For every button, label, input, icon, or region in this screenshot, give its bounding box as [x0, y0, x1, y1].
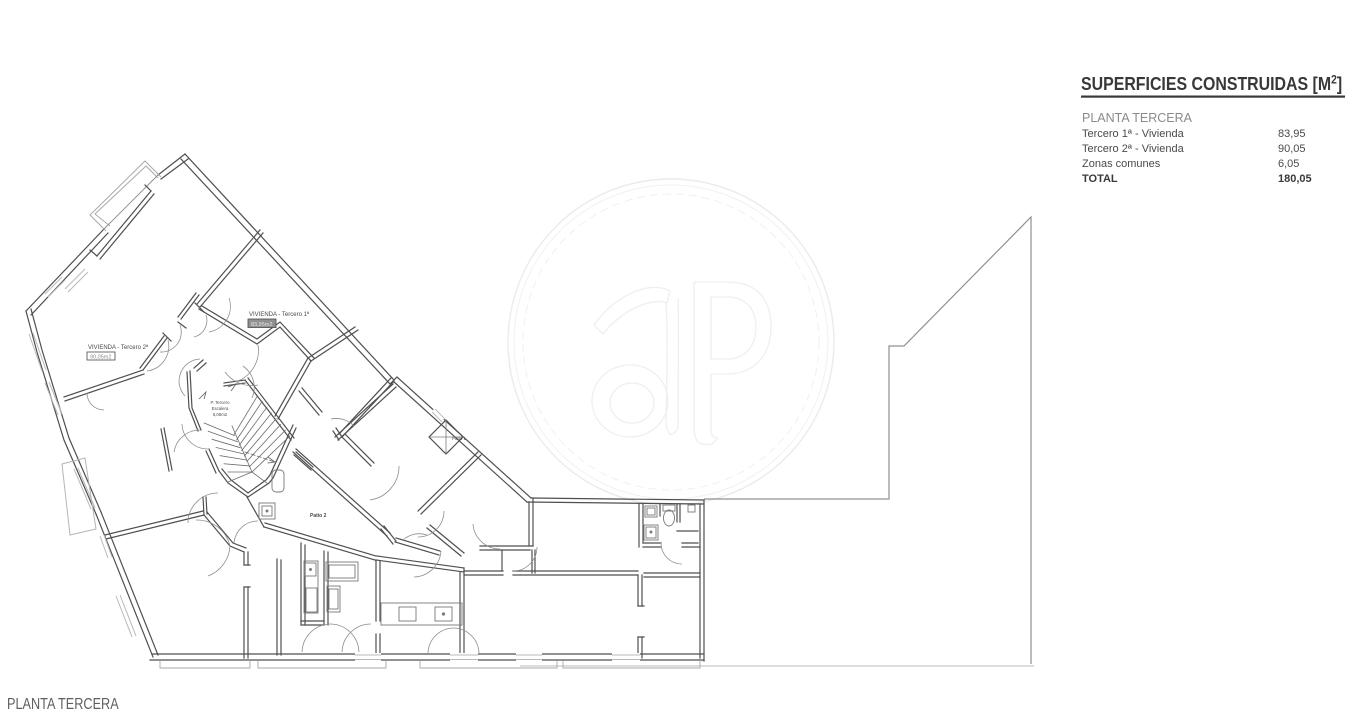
- svg-text:Zonas comunes: Zonas comunes: [1082, 158, 1161, 170]
- svg-text:VIVIENDA - Tercero 1ª: VIVIENDA - Tercero 1ª: [249, 311, 310, 318]
- svg-text:Escalera: Escalera: [212, 406, 229, 411]
- svg-text:90,05: 90,05: [1278, 143, 1306, 155]
- svg-text:83,95m2: 83,95m2: [251, 322, 272, 328]
- svg-text:6,05: 6,05: [1278, 158, 1299, 170]
- svg-text:VIVIENDA - Tercero 2ª: VIVIENDA - Tercero 2ª: [88, 344, 149, 351]
- svg-text:6,05m2: 6,05m2: [213, 412, 228, 417]
- svg-text:90,05m2: 90,05m2: [90, 355, 111, 361]
- svg-text:PLANTA TERCERA: PLANTA TERCERA: [7, 696, 119, 713]
- svg-text:P. Tercero: P. Tercero: [211, 400, 231, 405]
- svg-text:TOTAL: TOTAL: [1082, 173, 1118, 185]
- svg-text:83,95: 83,95: [1278, 128, 1306, 140]
- svg-text:Patio 1: Patio 1: [452, 436, 467, 441]
- svg-text:Patio 2: Patio 2: [310, 513, 327, 519]
- svg-text:SUPERFICIES CONSTRUIDAS [M2]: SUPERFICIES CONSTRUIDAS [M2]: [1081, 73, 1342, 94]
- svg-text:PLANTA TERCERA: PLANTA TERCERA: [1082, 111, 1193, 125]
- svg-text:180,05: 180,05: [1278, 173, 1312, 185]
- svg-text:Tercero 1ª - Vivienda: Tercero 1ª - Vivienda: [1082, 128, 1185, 140]
- svg-text:Tercero 2ª - Vivienda: Tercero 2ª - Vivienda: [1082, 143, 1185, 155]
